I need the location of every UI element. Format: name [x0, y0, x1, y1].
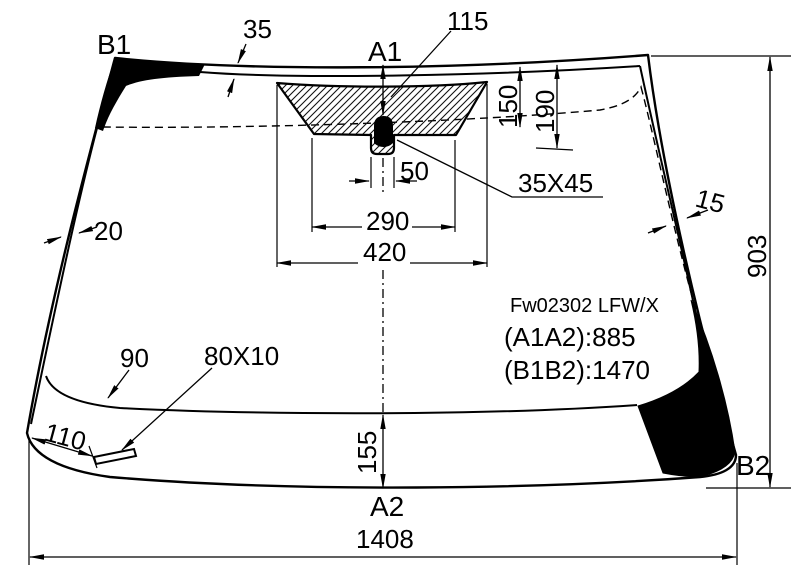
dim-35-label: 35	[243, 14, 272, 44]
dim-150-label: 150	[493, 85, 523, 128]
dim-90-label: 90	[120, 343, 149, 373]
dim-190-label: 190	[530, 90, 560, 133]
part-code: Fw02302 LFW/X	[510, 295, 659, 317]
dim-20-arrow	[44, 237, 61, 243]
note-b1b2: (B1B2):1470	[504, 355, 650, 385]
dim-155-label: 155	[352, 431, 382, 474]
dim-20-label: 20	[94, 216, 123, 246]
label-a1: A1	[368, 36, 402, 67]
dim-115-label: 115	[447, 6, 488, 36]
label-a2: A2	[370, 491, 404, 522]
dim-290-label: 290	[366, 206, 409, 236]
dim-35-arrow	[238, 44, 246, 63]
mark-size-label: 80X10	[204, 341, 279, 371]
dim-903-label: 903	[742, 235, 772, 278]
diagram-canvas: B1 A1 A2 B2 35 115 150 190 50 290 420 35…	[0, 0, 800, 587]
dim-50-label: 50	[400, 156, 429, 186]
sensor-size-label: 35X45	[518, 168, 593, 198]
sensor-bracket	[374, 116, 393, 147]
label-b2: B2	[736, 450, 770, 481]
note-a1a2: (A1A2):885	[504, 322, 636, 352]
dim-420-label: 420	[363, 237, 406, 267]
label-b1: B1	[97, 29, 131, 60]
windshield-technical-drawing: B1 A1 A2 B2 35 115 150 190 50 290 420 35…	[0, 0, 800, 587]
dim-1408-label: 1408	[356, 524, 414, 554]
